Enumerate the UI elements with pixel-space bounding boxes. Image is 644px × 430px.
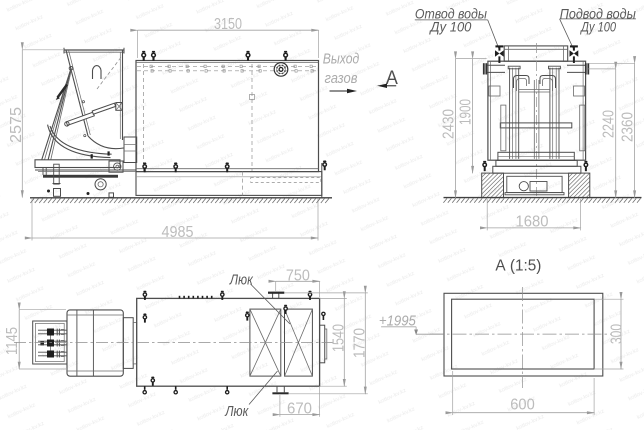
svg-text:670: 670 — [287, 401, 312, 418]
svg-text:2575: 2575 — [8, 107, 25, 143]
svg-text:1900: 1900 — [458, 99, 475, 125]
svg-text:4985: 4985 — [162, 224, 194, 241]
svg-text:750: 750 — [286, 267, 310, 284]
svg-text:газов: газов — [325, 71, 358, 87]
svg-text:Ду 100: Ду 100 — [429, 19, 472, 35]
svg-text:Люк: Люк — [224, 403, 249, 420]
svg-text:1680: 1680 — [516, 214, 549, 231]
svg-text:300: 300 — [608, 324, 625, 344]
svg-text:2360: 2360 — [620, 112, 637, 142]
svg-text:2430: 2430 — [441, 109, 458, 139]
svg-text:1145: 1145 — [4, 327, 21, 355]
svg-text:2240: 2240 — [601, 110, 618, 138]
svg-text:Люк: Люк — [229, 272, 254, 289]
svg-text:А (1:5): А (1:5) — [495, 258, 541, 275]
svg-text:1770: 1770 — [351, 328, 368, 358]
svg-text:1540: 1540 — [330, 324, 347, 352]
svg-text:3150: 3150 — [214, 16, 242, 33]
svg-text:Выход: Выход — [323, 52, 360, 68]
svg-text:600: 600 — [510, 396, 535, 413]
svg-text:Ду 100: Ду 100 — [580, 18, 617, 34]
